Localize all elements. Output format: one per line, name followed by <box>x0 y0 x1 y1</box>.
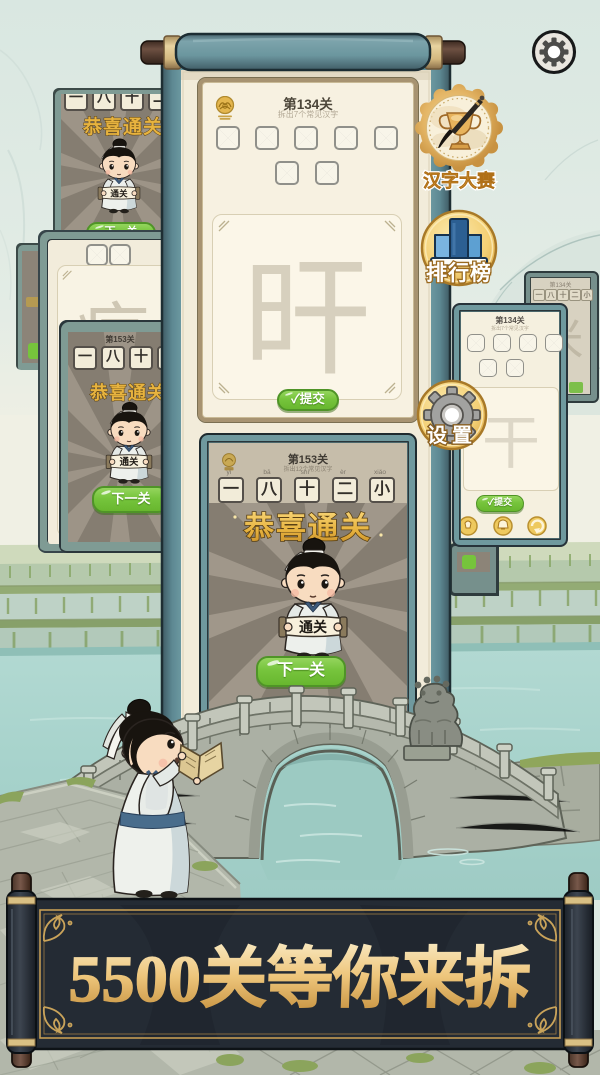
svg-text:5500关等你来拆: 5500关等你来拆 <box>68 943 533 1016</box>
